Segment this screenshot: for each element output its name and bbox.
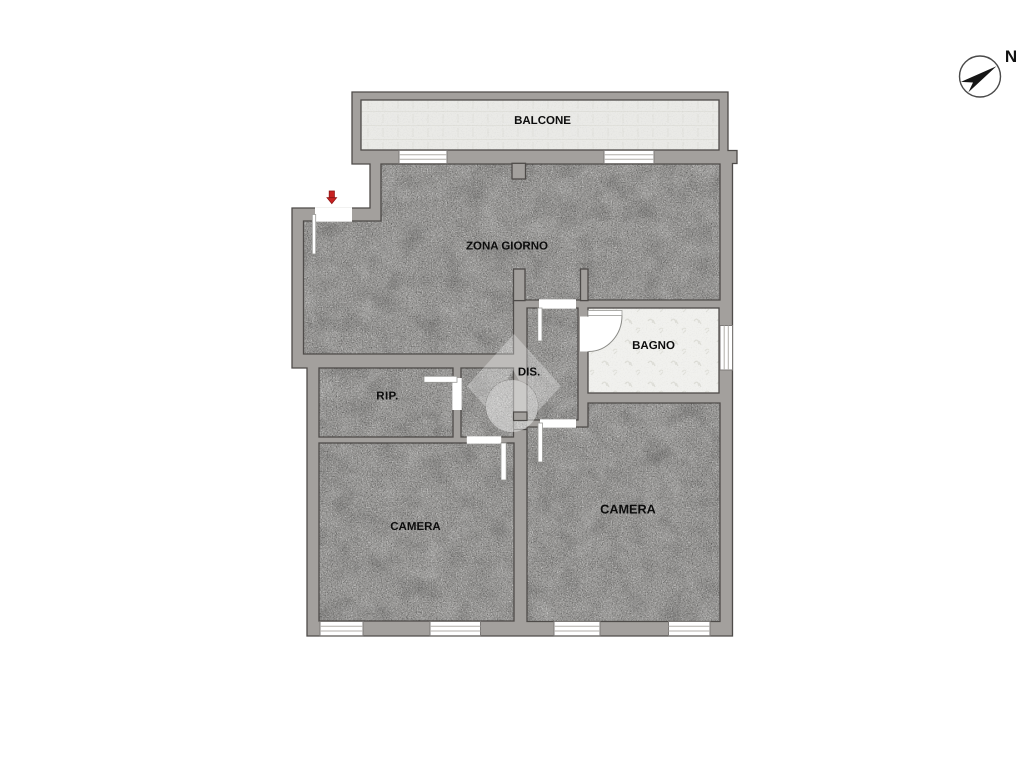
svg-text:DIS.: DIS. — [518, 367, 540, 379]
svg-text:CAMERA: CAMERA — [390, 521, 440, 533]
svg-text:BALCONE: BALCONE — [514, 115, 571, 127]
svg-text:N: N — [1005, 47, 1017, 66]
svg-text:BAGNO: BAGNO — [632, 340, 675, 352]
svg-text:ZONA GIORNO: ZONA GIORNO — [466, 241, 548, 253]
svg-text:CAMERA: CAMERA — [600, 503, 656, 517]
svg-text:RIP.: RIP. — [376, 391, 398, 403]
